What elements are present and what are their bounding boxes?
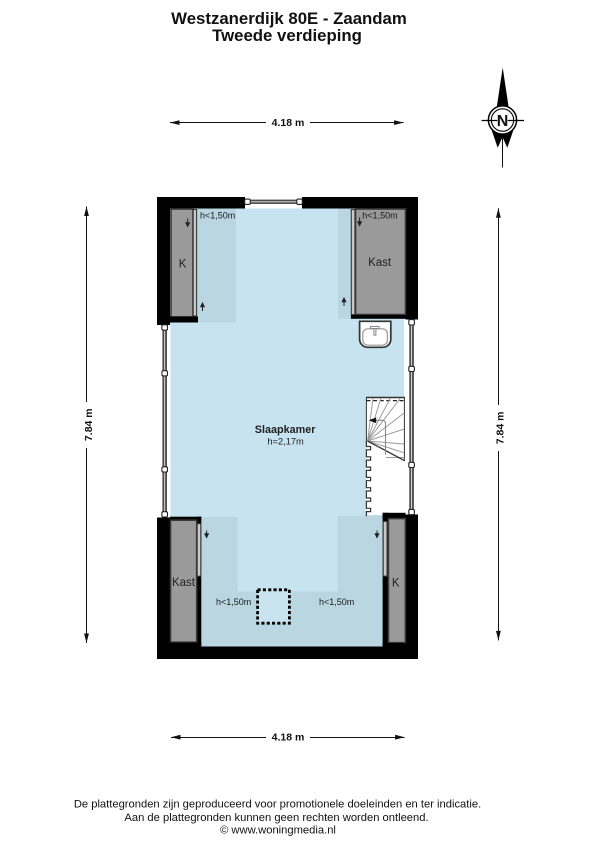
svg-text:Kast: Kast <box>172 577 196 589</box>
svg-text:Aan de plattegronden kunnen ge: Aan de plattegronden kunnen geen rechten… <box>124 812 428 824</box>
svg-text:N: N <box>497 113 509 130</box>
svg-text:Slaapkamer: Slaapkamer <box>255 424 316 436</box>
svg-text:h<1,50m: h<1,50m <box>362 211 397 221</box>
svg-text:4.18 m: 4.18 m <box>272 731 305 743</box>
svg-text:De plattegronden zijn geproduc: De plattegronden zijn geproduceerd voor … <box>74 799 481 811</box>
svg-text:Kast: Kast <box>368 257 392 269</box>
svg-text:Tweede verdieping: Tweede verdieping <box>212 26 362 45</box>
svg-text:4.18 m: 4.18 m <box>272 117 305 129</box>
svg-text:© www.woningmedia.nl: © www.woningmedia.nl <box>220 825 336 837</box>
svg-text:h=2,17m: h=2,17m <box>267 437 304 447</box>
svg-text:h<1,50m: h<1,50m <box>216 597 251 607</box>
svg-text:7.84 m: 7.84 m <box>495 412 507 445</box>
svg-text:Westzanerdijk 80E - Zaandam: Westzanerdijk 80E - Zaandam <box>171 9 407 28</box>
svg-text:K: K <box>392 578 400 590</box>
svg-text:7.84 m: 7.84 m <box>83 408 95 441</box>
svg-text:K: K <box>179 259 187 271</box>
svg-text:h<1,50m: h<1,50m <box>319 597 354 607</box>
svg-text:h<1,50m: h<1,50m <box>200 211 235 221</box>
